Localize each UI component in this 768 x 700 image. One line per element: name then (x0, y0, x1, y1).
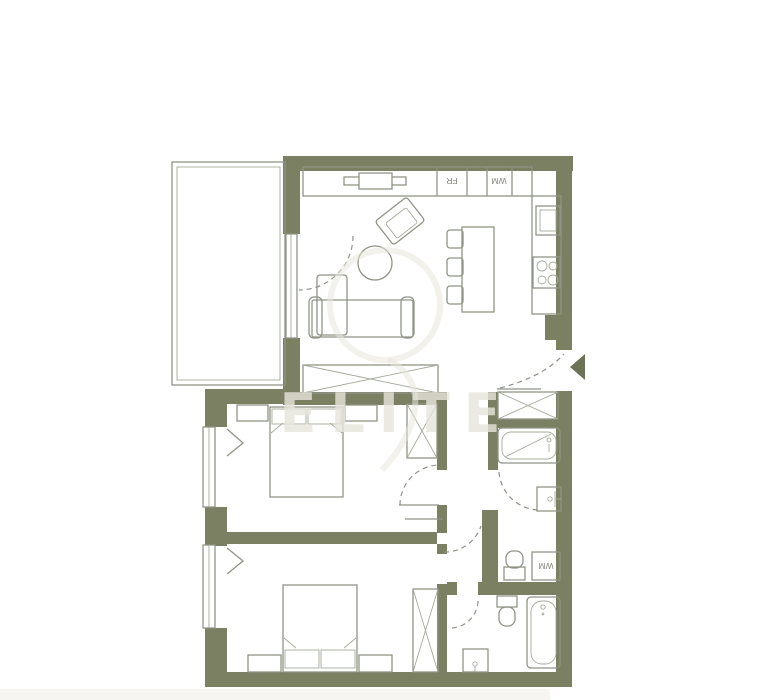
bottom-edge-strip (0, 689, 550, 700)
wall-left-b (205, 507, 227, 546)
bath-washer-label: WM (538, 561, 553, 571)
wall-bedrooms-divider (227, 532, 437, 544)
fridge-label: FR (446, 176, 457, 186)
terrace-glass-door (286, 234, 297, 338)
wall-right-lower (556, 391, 572, 687)
floor-plan-page: FR WM (0, 0, 768, 700)
wall-bath2-stub (447, 582, 457, 595)
floor-plan-drawing: FR WM (0, 0, 768, 700)
tv-box-icon (359, 173, 392, 189)
wall-top (283, 156, 573, 171)
watermark-text: ELITE (279, 382, 514, 445)
background (0, 0, 768, 700)
kitchen-washer-label: WM (491, 176, 506, 186)
wall-entry-step (545, 315, 572, 340)
wall-bath1-bottom (478, 582, 572, 595)
wall-left-a (205, 404, 227, 427)
wall-bath1-left-b (482, 510, 498, 582)
wall-bottom (205, 672, 572, 687)
